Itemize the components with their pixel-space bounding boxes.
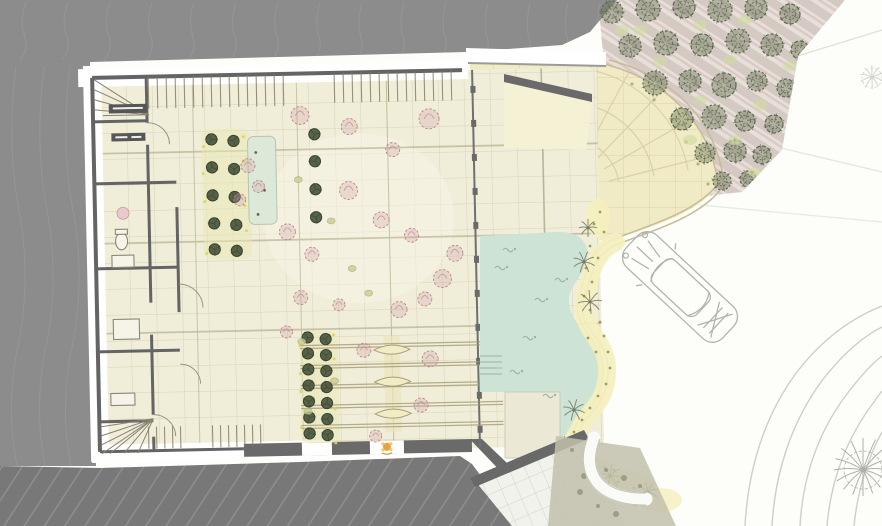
fixture bbox=[111, 393, 135, 406]
counter bbox=[113, 319, 139, 340]
site-plan-stage bbox=[0, 0, 882, 526]
toilet-tank bbox=[115, 229, 127, 234]
toilet bbox=[115, 233, 127, 250]
site-plan-canvas bbox=[0, 0, 882, 526]
south-wall-opening bbox=[302, 442, 332, 456]
water-feature bbox=[247, 136, 277, 225]
sink-counter bbox=[112, 255, 134, 267]
bath-accessory bbox=[117, 207, 129, 219]
